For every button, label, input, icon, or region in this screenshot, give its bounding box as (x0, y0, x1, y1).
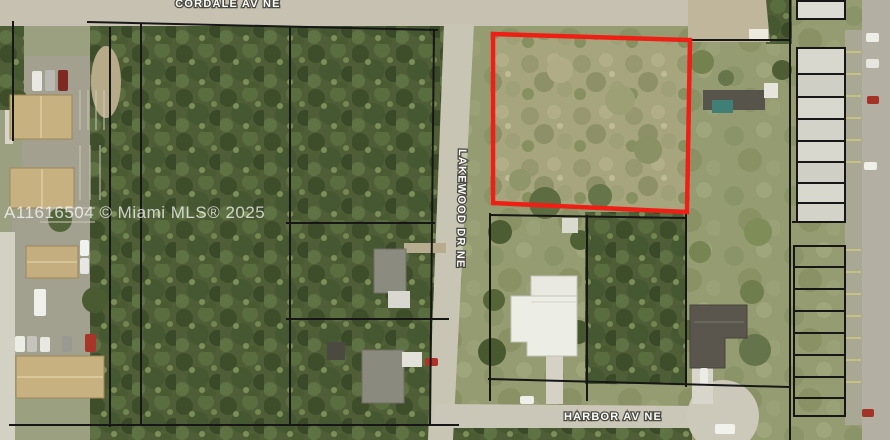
right-parking-strip (845, 30, 862, 425)
white-trailer-top (749, 29, 768, 39)
walkway-strip (0, 232, 15, 440)
street-label-harbor: HARBOR AV NE (564, 411, 662, 423)
vacant-lot (490, 32, 692, 219)
concrete-pad (562, 218, 578, 233)
house-1-shed (388, 291, 410, 308)
white-shed (764, 83, 778, 98)
woods-top-right (766, 0, 792, 44)
house-2-roof (362, 350, 404, 403)
house-2-carport (402, 352, 422, 367)
street-label-cordale: CORDALE AV NE (175, 0, 280, 10)
street-label-lakewood: LAKEWOOD DR NE (454, 149, 468, 269)
apartment-building-2 (10, 168, 74, 208)
house-1-roof (374, 249, 406, 293)
woods-right-parcel (585, 212, 687, 384)
pool (712, 100, 733, 113)
dark-shed (327, 342, 345, 360)
apartment-building-4 (16, 356, 104, 398)
aerial-map: CORDALE AV NE LAKEWOOD DR NE HARBOR AV N… (0, 0, 890, 440)
woods-bottom-strip (430, 426, 692, 440)
driveway-middle (404, 243, 446, 253)
apartment-building-1 (10, 95, 72, 139)
mls-watermark: A11616504 © Miami MLS® 2025 (4, 203, 265, 222)
apartment-building-3 (26, 246, 78, 278)
van-culdesac (715, 424, 735, 434)
mls-aerial-photo: CORDALE AV NE LAKEWOOD DR NE HARBOR AV N… (0, 0, 890, 440)
